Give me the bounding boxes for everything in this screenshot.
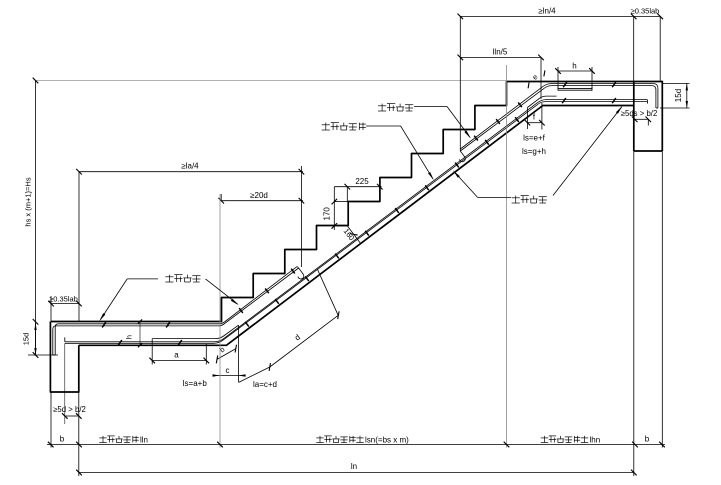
svg-text:≥ln/4: ≥ln/4 bbox=[538, 7, 556, 16]
svg-text:lln: lln bbox=[140, 436, 148, 445]
svg-text:170: 170 bbox=[323, 207, 332, 221]
svg-text:≥20d: ≥20d bbox=[250, 191, 268, 200]
svg-text:225: 225 bbox=[355, 177, 369, 186]
svg-text:c: c bbox=[226, 366, 230, 375]
svg-text:a: a bbox=[174, 351, 179, 360]
svg-text:15d: 15d bbox=[674, 89, 683, 102]
svg-text:≥5d > b/2: ≥5d > b/2 bbox=[53, 405, 86, 414]
svg-text:lhn: lhn bbox=[590, 436, 601, 445]
svg-text:h: h bbox=[125, 335, 134, 339]
svg-text:≥5ds > b/2: ≥5ds > b/2 bbox=[621, 109, 658, 118]
svg-text:b: b bbox=[60, 435, 65, 444]
svg-text:la=c+d: la=c+d bbox=[253, 380, 277, 389]
svg-text:hs x (m+1)=Hs: hs x (m+1)=Hs bbox=[24, 177, 33, 226]
svg-text:ls=e+f: ls=e+f bbox=[523, 134, 546, 143]
svg-text:≥0.35lab: ≥0.35lab bbox=[631, 7, 660, 16]
svg-text:≥0.35lab: ≥0.35lab bbox=[49, 295, 78, 304]
svg-text:15d: 15d bbox=[22, 333, 31, 346]
svg-text:lsn(=bs x m): lsn(=bs x m) bbox=[365, 436, 409, 445]
svg-text:ls=a+b: ls=a+b bbox=[183, 379, 208, 388]
svg-text:b: b bbox=[645, 435, 650, 444]
svg-text:ls=g+h: ls=g+h bbox=[522, 147, 546, 156]
svg-text:ln: ln bbox=[351, 462, 357, 471]
svg-text:≥la/4: ≥la/4 bbox=[181, 162, 199, 171]
svg-text:lln/5: lln/5 bbox=[493, 48, 508, 57]
svg-text:h: h bbox=[572, 62, 576, 71]
